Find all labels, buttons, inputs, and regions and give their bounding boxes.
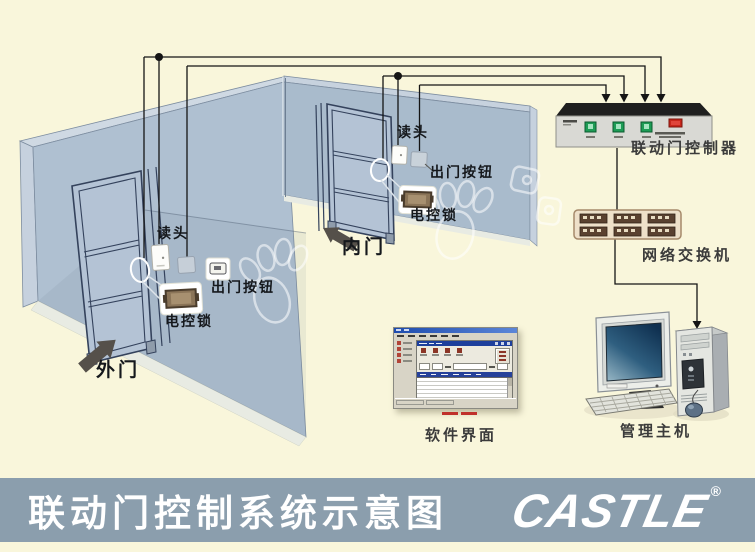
brand-logo-text: CASTLE — [508, 487, 712, 534]
network-switch-device — [574, 210, 681, 239]
scene-drawing — [0, 0, 755, 552]
filter-input — [497, 363, 508, 370]
window-close-button — [507, 342, 510, 345]
outer-door-label: 外门 — [96, 361, 140, 380]
management-host-computer — [584, 312, 729, 421]
filter-input — [432, 363, 443, 370]
software-window — [393, 327, 518, 409]
software-ui-label: 软件界面 — [425, 428, 497, 443]
tree-node-icon — [397, 341, 401, 345]
inner-exit-button-label: 出门按钮 — [430, 165, 494, 179]
pc-tower — [676, 327, 729, 416]
outer-exit-button-box — [177, 256, 195, 273]
inner-exit-button-box — [411, 152, 428, 168]
controller-green-buttons — [585, 122, 652, 132]
software-statusbar — [395, 398, 516, 407]
outer-exit-button-label: 出门按钮 — [211, 280, 275, 294]
controller-label: 联动门控制器 — [631, 141, 739, 156]
toolbar-large-button — [495, 348, 510, 364]
management-host-label: 管理主机 — [620, 424, 692, 439]
inner-card-reader — [392, 146, 408, 165]
filter-input-long — [453, 363, 487, 370]
inner-lock-label: 电控锁 — [410, 208, 458, 222]
outer-lock-label: 电控锁 — [165, 314, 213, 328]
outer-reader-label: 读头 — [157, 226, 189, 240]
outer-card-reader — [151, 244, 170, 270]
controller-red-button — [669, 119, 682, 127]
toolbar-button — [455, 347, 464, 360]
brand-logo: CASTLE ® — [513, 487, 721, 534]
window-maximize-button — [501, 342, 504, 345]
footer-title-bar: 联动门控制系统示意图 CASTLE ® — [0, 478, 755, 542]
toolbar-button — [431, 347, 440, 360]
toolbar-button — [419, 347, 428, 360]
tree-node-icon — [397, 353, 401, 357]
toolbar-button — [443, 347, 452, 360]
software-tree-panel — [397, 341, 414, 365]
outer-electric-lock-icon — [159, 282, 203, 315]
tree-node-icon — [397, 347, 401, 351]
window-minimize-button — [495, 342, 498, 345]
network-switch-label: 网络交换机 — [642, 248, 732, 263]
inner-door-label: 内门 — [342, 238, 386, 257]
page-title: 联动门控制系统示意图 — [28, 483, 448, 537]
software-child-window — [416, 340, 513, 402]
tree-node-icon — [397, 359, 401, 363]
child-window-toolbar — [417, 346, 512, 361]
software-red-url-text — [442, 412, 477, 415]
outer-exit-button-icon — [206, 258, 230, 280]
diagram-page: 读头 出门按钮 电控锁 外门 读头 出门按钮 电控锁 内门 联动门控制器 网络交… — [0, 0, 755, 552]
inner-reader-label: 读头 — [397, 125, 429, 139]
filter-input — [419, 363, 430, 370]
